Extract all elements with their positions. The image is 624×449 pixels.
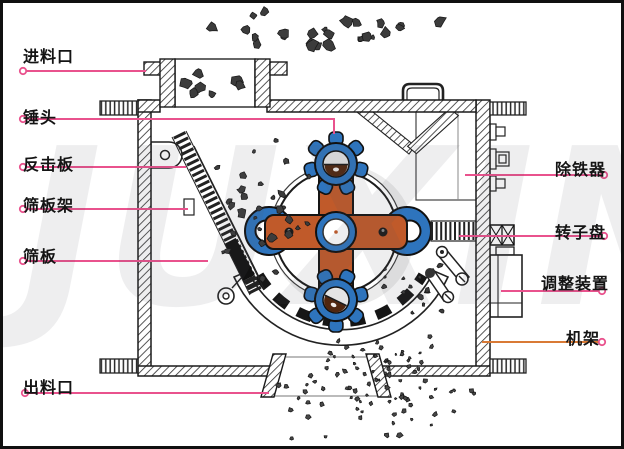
fines-discharge-spray-particle [297, 396, 300, 400]
label-screen-plate: 筛板 [23, 243, 57, 267]
fines-discharge-spray-particle [430, 424, 432, 426]
fines-discharge-spray-particle [395, 353, 397, 355]
fines-discharge-spray-particle [369, 401, 373, 406]
fines-discharge-spray-particle [396, 433, 403, 438]
fines-discharge-spray-particle [306, 401, 311, 404]
rocks-top-spray-particle [307, 28, 318, 39]
fines-discharge-spray-particle [419, 387, 421, 390]
mount-foot-bottom-right [490, 359, 526, 373]
mount-foot-bottom-left [100, 359, 138, 373]
fines-discharge-spray-particle [384, 372, 387, 375]
screen-frame-rail [184, 199, 194, 215]
fines-discharge-spray-particle [419, 352, 422, 354]
fines-discharge-spray-particle [411, 418, 413, 421]
fines-discharge-spray-particle [384, 433, 389, 438]
rocks-impact-path-particle [284, 158, 290, 164]
fines-discharge-spray-particle [434, 388, 437, 391]
top-wall [267, 100, 476, 112]
rocks-screen-right-particle [384, 276, 386, 279]
fines-discharge-spray-particle [324, 436, 327, 438]
rocks-impact-path-particle [282, 206, 286, 209]
label-screen-frame: 筛板架 [23, 192, 74, 216]
fines-discharge-spray-particle [348, 386, 352, 390]
fines-discharge-spray-particle [388, 400, 391, 403]
label-iron-remover: 除铁器 [555, 156, 606, 180]
fines-discharge-spray-particle [363, 372, 366, 376]
label-discharge-outlet: 出料口 [23, 374, 74, 398]
fines-discharge-spray-particle [394, 398, 397, 400]
rocks-top-spray-particle [250, 12, 257, 19]
fines-discharge-spray-particle [392, 421, 395, 425]
rocks-impact-path-particle [274, 138, 279, 142]
left-wall [138, 100, 151, 371]
mount-foot-top-right [490, 102, 526, 115]
rocks-top-spray-particle [241, 25, 250, 34]
fines-discharge-spray-particle [353, 389, 357, 394]
fines-discharge-spray-particle [388, 372, 392, 378]
fines-discharge-spray-particle [432, 411, 437, 416]
rotor-hub [316, 212, 356, 252]
fines-discharge-spray-particle [356, 407, 359, 410]
fines-discharge-spray-particle [429, 395, 433, 398]
fines-discharge-spray-particle [402, 409, 407, 413]
rocks-top-spray-particle [260, 7, 268, 16]
fines-discharge-spray-particle [413, 370, 418, 373]
label-rotor-disc: 转子盘 [555, 219, 606, 243]
rocks-top-spray-particle [323, 30, 334, 39]
rocks-top-spray-particle [323, 39, 336, 52]
label-feed-inlet: 进料口 [23, 43, 74, 67]
label-frame: 机架 [566, 325, 600, 349]
fines-discharge-spray-particle [359, 401, 361, 403]
rocks-impact-path-particle [238, 208, 246, 218]
rocks-top-spray-particle [377, 19, 385, 28]
fines-discharge-spray-particle [350, 396, 353, 399]
fines-discharge-spray-particle [361, 411, 364, 413]
fines-discharge-spray-particle [320, 402, 324, 407]
wall-bolts [490, 124, 509, 191]
mount-foot-top-left [100, 101, 138, 115]
machine-diagram: JUXIN 进料口 锤头 反击板 筛板架 筛板 出料口 除铁器 转子盘 调整装置… [0, 0, 624, 449]
rocks-top-spray-particle [278, 29, 289, 38]
rocks-screen-right-particle [422, 303, 425, 307]
feed-hopper [144, 59, 287, 107]
fines-discharge-spray-particle [399, 380, 402, 383]
fines-discharge-spray-particle [469, 389, 473, 393]
fines-discharge-spray-particle [290, 437, 294, 440]
fines-discharge-spray-particle [452, 410, 456, 413]
fines-discharge-spray-particle [378, 379, 380, 381]
floor-left [138, 366, 274, 376]
label-adjustment-device: 调整装置 [541, 270, 609, 294]
discharge-funnel [261, 354, 391, 397]
adjustment-device [490, 247, 522, 317]
fines-discharge-spray-particle [359, 416, 362, 420]
lifting-handle [403, 84, 443, 100]
fines-discharge-spray-particle [401, 350, 404, 352]
top-wall-left [138, 100, 160, 112]
floor-right [380, 366, 490, 376]
fines-discharge-spray-particle [288, 408, 293, 412]
fines-discharge-spray-particle [306, 415, 312, 420]
rocks-top-spray-particle [362, 32, 371, 42]
fines-discharge-spray-particle [423, 379, 427, 383]
fines-discharge-spray-particle [452, 389, 455, 392]
fines-discharge-spray-particle [333, 355, 335, 358]
label-impact-plate: 反击板 [23, 151, 74, 175]
rocks-top-spray-particle [206, 22, 217, 31]
rocks-screen-right-particle [409, 285, 413, 288]
fines-discharge-spray-particle [392, 413, 397, 417]
rocks-screen-right-particle [425, 287, 429, 292]
fines-discharge-spray-particle [387, 367, 390, 372]
rocks-top-spray-particle [340, 16, 353, 28]
fines-discharge-spray-particle [409, 403, 413, 407]
label-hammer-head: 锤头 [23, 104, 57, 128]
rocks-top-spray-particle [434, 17, 446, 27]
diagram-canvas [3, 3, 624, 449]
fines-discharge-spray-particle [449, 390, 452, 393]
